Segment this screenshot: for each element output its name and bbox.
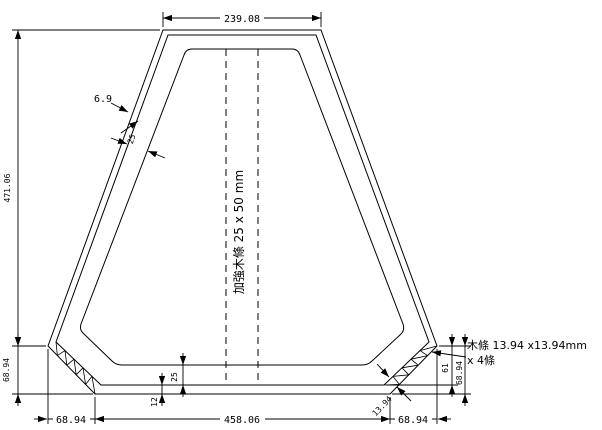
dim-bottom-center-value: 458.06 <box>224 415 260 426</box>
note-wood-strip-line1: 木條 13.94 x13.94mm <box>467 338 587 352</box>
dim-skin-thickness-value: 6.9 <box>94 94 112 105</box>
dim-left-chamfer-value: 68.94 <box>2 358 11 382</box>
dim-right-chamfer-value: 68.94 <box>455 361 464 385</box>
note-wood-strip-line2: x 4條 <box>467 353 495 367</box>
dim-top-width: 239.08 <box>163 12 321 27</box>
dim-bottom-left-value: 68.94 <box>56 415 86 426</box>
dim-skin-thickness: 6.9 <box>94 94 138 133</box>
dim-strip-diagonal: 13.94 <box>371 364 411 418</box>
dim-bottom-skin: 12 <box>150 373 162 407</box>
dim-right-side: 61 68.94 <box>386 334 471 406</box>
dim-bottom-frame: 25 <box>170 353 183 397</box>
engineering-drawing: 239.08 471.06 68.94 68.94 458.06 68.94 <box>0 0 602 430</box>
dim-left-height: 471.06 68.94 <box>2 30 160 406</box>
drawing-canvas: 239.08 471.06 68.94 68.94 458.06 68.94 <box>0 0 602 430</box>
dim-frame-slope: 25 <box>111 133 165 158</box>
dim-bottom-skin-value: 12 <box>150 397 159 407</box>
dim-bottom-right-value: 68.94 <box>398 415 428 426</box>
dim-bottom-frame-value: 25 <box>170 372 179 382</box>
hatch-right-chamfer <box>384 346 437 385</box>
dim-bottom-chain: 68.94 458.06 68.94 <box>34 349 451 426</box>
note-reinforcement: 加強木條 25 x 50 mm <box>232 170 246 294</box>
hatch-left-chamfer <box>56 342 95 394</box>
dim-frame-slope-value: 25 <box>126 133 138 145</box>
dim-right-inner-value: 61 <box>441 363 450 373</box>
dim-top-width-value: 239.08 <box>224 14 260 25</box>
dim-total-height-value: 471.06 <box>3 173 12 202</box>
